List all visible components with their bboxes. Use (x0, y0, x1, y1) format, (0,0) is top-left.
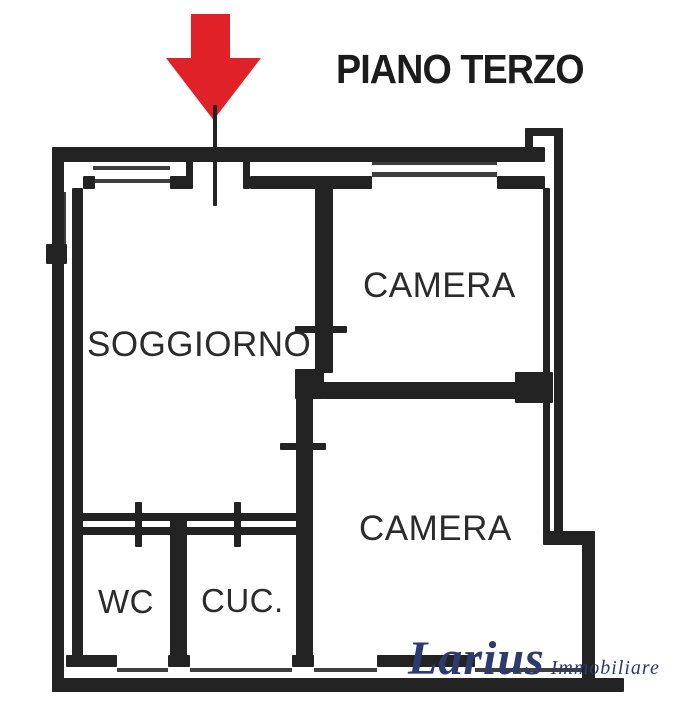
wall-top-inner (497, 176, 545, 189)
wall-right-inner (543, 188, 550, 532)
wall-center-vertical (296, 398, 313, 658)
room-label-camera-top: CAMERA (363, 266, 516, 306)
window-bottom (117, 668, 168, 672)
door-mark-cucina (234, 502, 241, 547)
wall-wc-cuc-top (77, 527, 298, 535)
wall-junction-right (515, 372, 553, 403)
wall-left-inner (72, 188, 83, 658)
wall-wc-cuc-top (77, 513, 298, 521)
wall-wc-divider (170, 520, 187, 658)
window-top-right (372, 172, 497, 177)
room-label-cucina: CUC. (201, 582, 284, 620)
window-bottom (190, 668, 292, 672)
wall-left-pillar (46, 244, 67, 264)
window-top-left (93, 166, 170, 170)
window-left (63, 192, 66, 246)
entrance-jamb-left (186, 147, 193, 189)
brand-name: Larius (408, 632, 545, 685)
door-mark-camera-bottom (280, 443, 326, 450)
window-bottom (314, 668, 377, 672)
wall-junction-center (295, 369, 324, 399)
arrow-shaft (191, 14, 230, 64)
floorplan-page: PIANO TERZO (0, 0, 678, 720)
wall-camera-top-divider (315, 177, 333, 373)
window-top-left (93, 179, 170, 183)
wall-top-inner (250, 176, 372, 189)
room-label-camera-bottom: CAMERA (359, 509, 512, 549)
brand-watermark: LariusImmobiliare (408, 631, 660, 686)
entrance-jamb-right (243, 147, 250, 189)
room-label-wc: WC (98, 583, 154, 621)
page-title: PIANO TERZO (336, 46, 584, 93)
wall-right-outer (554, 128, 563, 540)
room-label-soggiorno: SOGGIORNO (87, 325, 311, 365)
window-top-right (372, 160, 497, 165)
brand-suffix: Immobiliare (551, 657, 660, 679)
wall-camera-divider (323, 382, 516, 399)
door-mark-wc (135, 502, 142, 547)
